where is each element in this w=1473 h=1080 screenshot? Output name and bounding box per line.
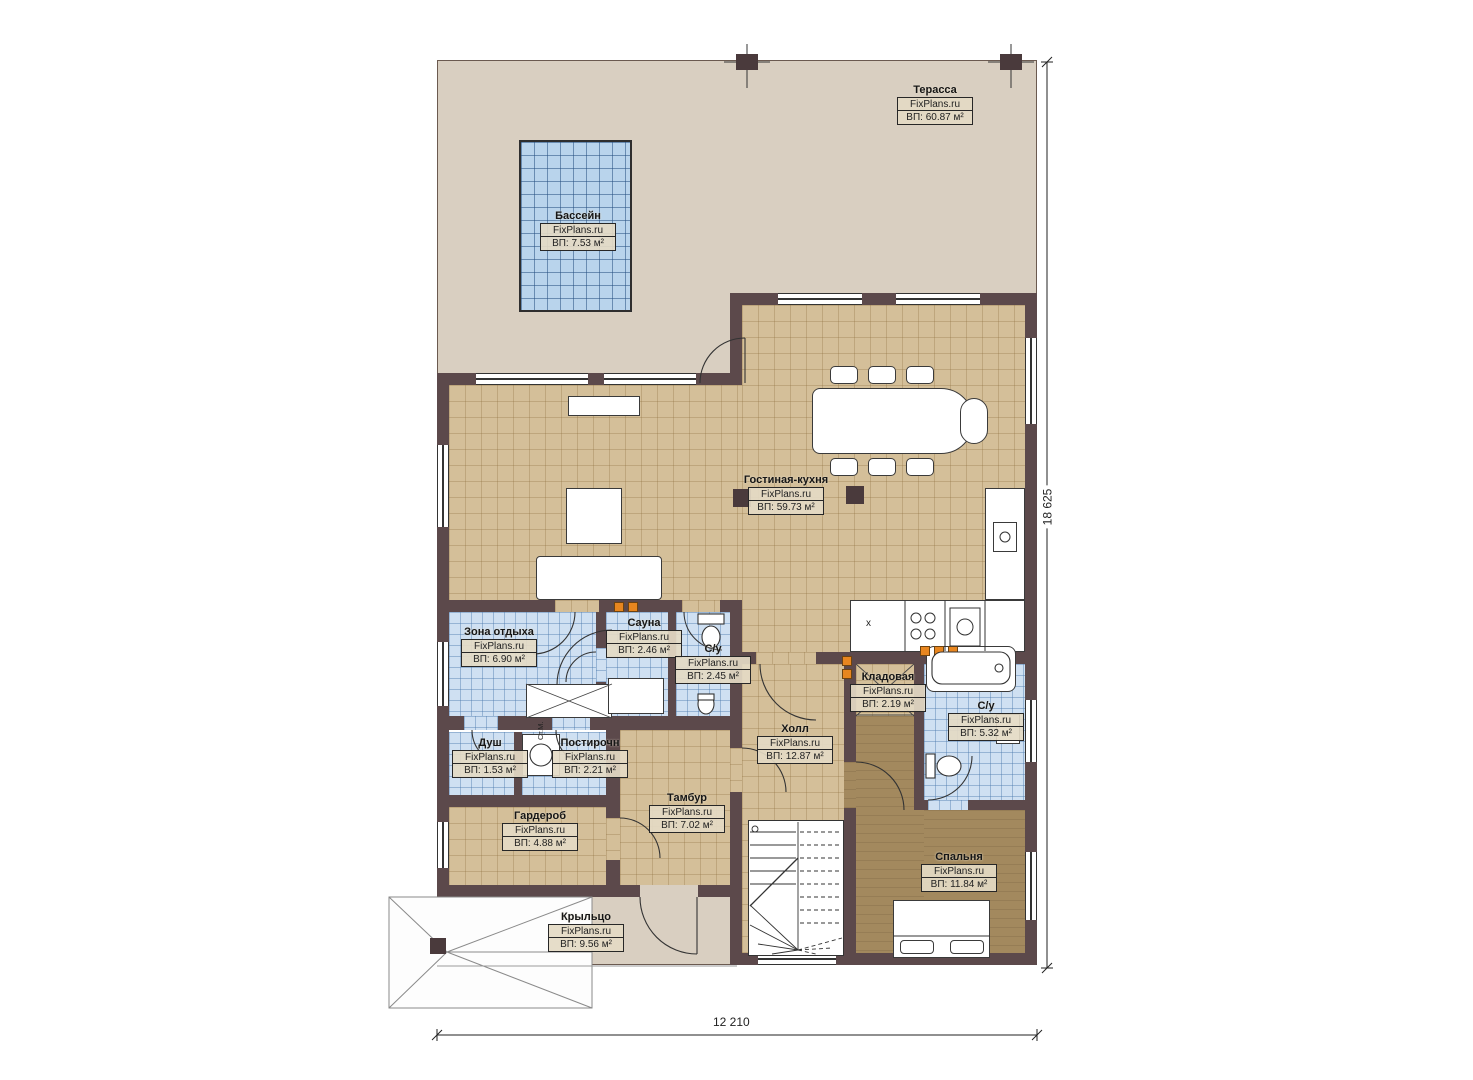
door-opening bbox=[552, 716, 590, 730]
wall-segment bbox=[730, 293, 742, 385]
room-label-pool: Бассейн FixPlans.ruВП: 7.53 м² bbox=[518, 210, 638, 251]
marker-orange bbox=[614, 602, 624, 612]
room-name: С/у bbox=[926, 700, 1046, 713]
kitchen-sink bbox=[993, 522, 1017, 552]
room-area: ВП: 7.02 м² bbox=[650, 819, 724, 832]
room-area: ВП: 59.73 м² bbox=[749, 501, 823, 514]
dimension-width-label: 12 210 bbox=[710, 1015, 753, 1029]
room-info-box: FixPlans.ruВП: 2.19 м² bbox=[850, 684, 926, 712]
window bbox=[437, 445, 449, 527]
watermark: FixPlans.ru bbox=[676, 657, 750, 670]
dining-table bbox=[812, 388, 974, 454]
watermark: FixPlans.ru bbox=[549, 925, 623, 938]
marker-orange bbox=[920, 646, 930, 656]
room-area: ВП: 2.21 м² bbox=[553, 764, 627, 777]
chair bbox=[960, 398, 988, 444]
room-name: Постирочн bbox=[530, 737, 650, 750]
room-name: Гостиная-кухня bbox=[726, 474, 846, 487]
chair bbox=[906, 458, 934, 476]
room-info-box: FixPlans.ruВП: 59.73 м² bbox=[748, 487, 824, 515]
watermark: FixPlans.ru bbox=[453, 751, 527, 764]
sofa bbox=[536, 556, 662, 600]
room-label-living: Гостиная-кухня FixPlans.ruВП: 59.73 м² bbox=[726, 474, 846, 515]
room-label-wardrobe: Гардероб FixPlans.ruВП: 4.88 м² bbox=[480, 810, 600, 851]
fridge-label: x bbox=[866, 618, 871, 629]
chair bbox=[868, 366, 896, 384]
room-name: Гардероб bbox=[480, 810, 600, 823]
room-name: Терасса bbox=[875, 84, 995, 97]
room-label-wc-small: С/у FixPlans.ruВП: 2.45 м² bbox=[653, 643, 773, 684]
door-opening bbox=[928, 800, 968, 810]
pillow bbox=[900, 940, 934, 954]
room-label-hall: Холл FixPlans.ruВП: 12.87 м² bbox=[735, 723, 855, 764]
room-area: ВП: 6.90 м² bbox=[462, 653, 536, 666]
watermark: FixPlans.ru bbox=[922, 865, 996, 878]
marker-orange bbox=[842, 656, 852, 666]
watermark: FixPlans.ru bbox=[462, 640, 536, 653]
window bbox=[437, 822, 449, 868]
marker-orange bbox=[628, 602, 638, 612]
tv-stand bbox=[568, 396, 640, 416]
door-opening bbox=[640, 885, 698, 897]
room-label-terrace: Терасса FixPlans.ruВП: 60.87 м² bbox=[875, 84, 995, 125]
room-label-lounge: Зона отдыха FixPlans.ruВП: 6.90 м² bbox=[439, 626, 559, 667]
closet-hatched bbox=[526, 684, 612, 718]
window bbox=[1025, 338, 1037, 424]
watermark: FixPlans.ru bbox=[898, 98, 972, 111]
room-name: С/у bbox=[653, 643, 773, 656]
dimension-height-label: 18 625 bbox=[1040, 486, 1054, 529]
room-area: ВП: 2.19 м² bbox=[851, 698, 925, 711]
room-label-porch: Крыльцо FixPlans.ruВП: 9.56 м² bbox=[526, 911, 646, 952]
room-info-box: FixPlans.ruВП: 4.88 м² bbox=[502, 823, 578, 851]
room-name: Тамбур bbox=[627, 792, 747, 805]
marker-orange bbox=[934, 646, 944, 656]
room-info-box: FixPlans.ruВП: 11.84 м² bbox=[921, 864, 997, 892]
room-area: ВП: 5.32 м² bbox=[949, 727, 1023, 740]
staircase bbox=[748, 820, 844, 956]
room-label-laundry: Постирочн FixPlans.ruВП: 2.21 м² bbox=[530, 737, 650, 778]
watermark: FixPlans.ru bbox=[851, 685, 925, 698]
door-opening bbox=[606, 818, 620, 860]
room-info-box: FixPlans.ruВП: 6.90 м² bbox=[461, 639, 537, 667]
door-opening bbox=[464, 716, 498, 730]
window bbox=[604, 373, 696, 385]
room-info-box: FixPlans.ruВП: 12.87 м² bbox=[757, 736, 833, 764]
room-area: ВП: 4.88 м² bbox=[503, 837, 577, 850]
room-label-bathroom: С/у FixPlans.ruВП: 5.32 м² bbox=[926, 700, 1046, 741]
room-area: ВП: 1.53 м² bbox=[453, 764, 527, 777]
coffee-table bbox=[566, 488, 622, 544]
watermark: FixPlans.ru bbox=[949, 714, 1023, 727]
watermark: FixPlans.ru bbox=[541, 224, 615, 237]
chair bbox=[868, 458, 896, 476]
kitchen-counter bbox=[850, 600, 1025, 652]
room-name: Холл bbox=[735, 723, 855, 736]
room-area: ВП: 11.84 м² bbox=[922, 878, 996, 891]
wall-segment bbox=[730, 293, 1037, 305]
floor-plan: 12 210 18 625 Ст.М. x Терасса FixPlans.r… bbox=[0, 0, 1473, 1080]
room-info-box: FixPlans.ruВП: 60.87 м² bbox=[897, 97, 973, 125]
door-opening bbox=[844, 762, 856, 808]
room-info-box: FixPlans.ruВП: 9.56 м² bbox=[548, 924, 624, 952]
chair bbox=[906, 366, 934, 384]
watermark: FixPlans.ru bbox=[749, 488, 823, 501]
window bbox=[896, 293, 980, 305]
pillow bbox=[950, 940, 984, 954]
room-name: Зона отдыха bbox=[439, 626, 559, 639]
room-name: Сауна bbox=[584, 617, 704, 630]
watermark: FixPlans.ru bbox=[758, 737, 832, 750]
room-area: ВП: 7.53 м² bbox=[541, 237, 615, 250]
watermark: FixPlans.ru bbox=[503, 824, 577, 837]
room-area: ВП: 2.45 м² bbox=[676, 670, 750, 683]
room-info-box: FixPlans.ruВП: 5.32 м² bbox=[948, 713, 1024, 741]
watermark: FixPlans.ru bbox=[650, 806, 724, 819]
room-label-bedroom: Спальня FixPlans.ruВП: 11.84 м² bbox=[899, 851, 1019, 892]
room-area: ВП: 60.87 м² bbox=[898, 111, 972, 124]
room-name: Кладовая bbox=[828, 671, 948, 684]
room-area: ВП: 12.87 м² bbox=[758, 750, 832, 763]
room-name: Спальня bbox=[899, 851, 1019, 864]
room-info-box: FixPlans.ruВП: 2.21 м² bbox=[552, 750, 628, 778]
room-name: Крыльцо bbox=[526, 911, 646, 924]
room-info-box: FixPlans.ruВП: 1.53 м² bbox=[452, 750, 528, 778]
room-area: ВП: 9.56 м² bbox=[549, 938, 623, 951]
room-info-box: FixPlans.ruВП: 7.53 м² bbox=[540, 223, 616, 251]
chair bbox=[830, 366, 858, 384]
window bbox=[1025, 852, 1037, 920]
room-name: Бассейн bbox=[518, 210, 638, 223]
wall-segment bbox=[449, 795, 618, 807]
watermark: FixPlans.ru bbox=[553, 751, 627, 764]
marker-orange bbox=[948, 646, 958, 656]
door-opening bbox=[555, 600, 599, 612]
door-opening bbox=[682, 600, 720, 612]
room-info-box: FixPlans.ruВП: 2.45 м² bbox=[675, 656, 751, 684]
room-info-box: FixPlans.ruВП: 7.02 м² bbox=[649, 805, 725, 833]
window bbox=[476, 373, 588, 385]
window bbox=[778, 293, 862, 305]
room-label-vestibule: Тамбур FixPlans.ruВП: 7.02 м² bbox=[627, 792, 747, 833]
